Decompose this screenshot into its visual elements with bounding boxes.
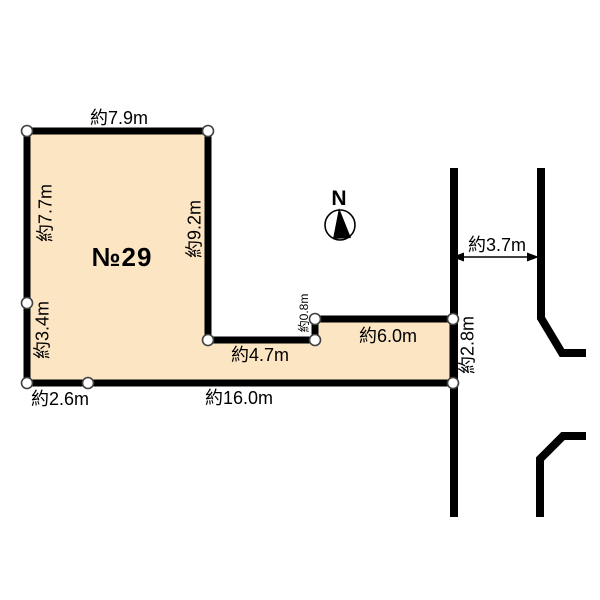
dim-bottom-left-label: 約2.6m	[31, 389, 89, 409]
vertex-marker	[310, 314, 321, 325]
dim-inner-vertical-label: 約9.2m	[184, 200, 204, 258]
dim-right-edge-label: 約2.8m	[457, 316, 477, 374]
plot-number-label: №29	[92, 242, 153, 272]
dim-left-upper-label: 約7.7m	[35, 184, 55, 242]
vertex-marker	[83, 378, 94, 389]
road-edge-right-lower-line	[540, 436, 586, 517]
road-width-label: 約3.7m	[468, 235, 526, 255]
vertex-marker	[22, 378, 33, 389]
plot-diagram-canvas: N 約7.9m 約7.7m 約3.4m 約9.2m №29 約4.7m 約0.8…	[0, 0, 600, 600]
dim-top-label: 約7.9m	[90, 108, 148, 128]
vertex-marker	[448, 378, 459, 389]
vertex-marker	[22, 126, 33, 137]
dim-inner-horizontal-label: 約4.7m	[231, 345, 289, 365]
dim-left-lower-label: 約3.4m	[32, 301, 52, 359]
vertex-marker	[203, 126, 214, 137]
vertex-marker	[448, 314, 459, 325]
plot-diagram: N 約7.9m 約7.7m 約3.4m 約9.2m №29 約4.7m 約0.8…	[0, 0, 600, 600]
dim-bottom-label: 約16.0m	[205, 388, 273, 408]
road-edge-right-upper-line	[541, 168, 586, 353]
vertex-marker	[310, 335, 321, 346]
vertex-marker	[22, 298, 33, 309]
dim-step-label: 約0.8m	[296, 294, 311, 333]
compass-north-label: N	[331, 187, 346, 210]
vertex-marker	[203, 335, 214, 346]
dim-right-upper-label: 約6.0m	[359, 326, 417, 346]
compass: N	[325, 187, 355, 240]
